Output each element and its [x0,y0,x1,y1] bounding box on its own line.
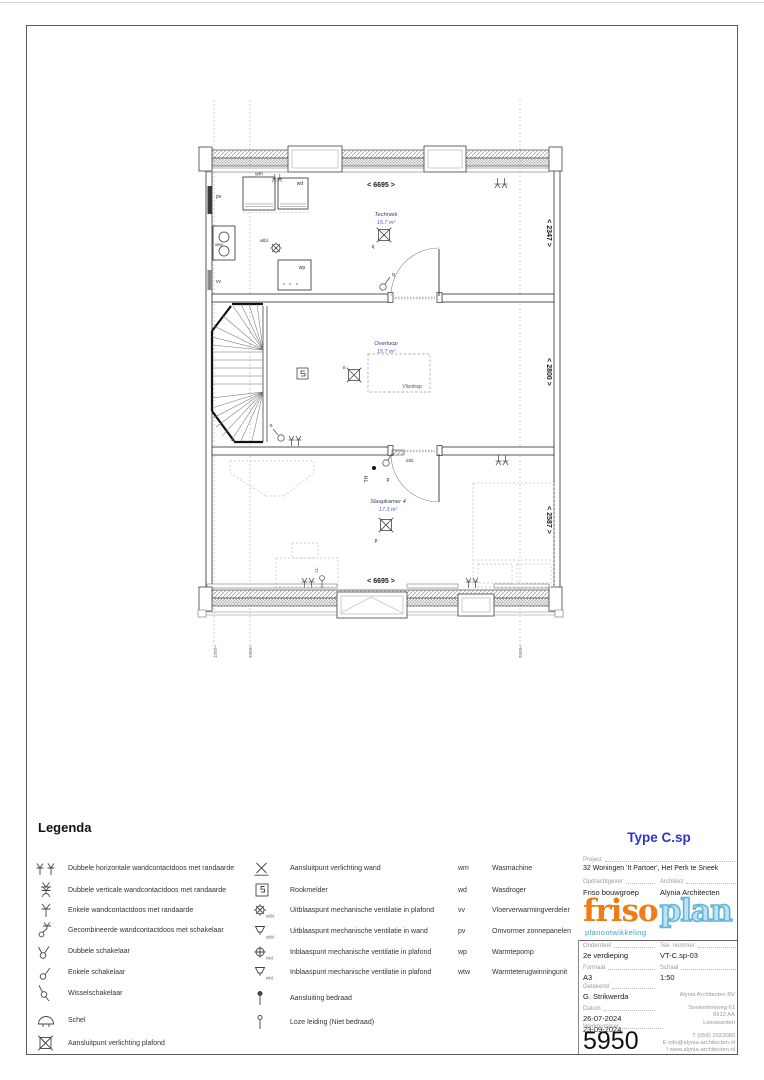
loze-leiding-label: LL [314,567,319,573]
supply-vent-ceiling-icon: inbl. [250,943,280,961]
dim-bottom: < 6695 > [367,578,395,585]
vlizotrap-label: Vlizotrap [402,384,422,390]
office-street: Snekertrekweg 61 [617,1005,735,1012]
switch-group-label-q: q [372,244,375,250]
office-zip: 8912 AA [617,1012,735,1019]
doorbell-icon [34,1011,58,1029]
room-area-techniek: 15.7 m² [377,220,395,226]
drawing-type-title: Type C.sp [583,830,735,845]
part-label: Onderdeel [583,943,611,949]
switch-label-q2: q [392,272,395,278]
dim-top: < 6695 > [367,182,395,189]
svg-text:inbl.: inbl. [266,976,274,981]
room-area-slaapkamer: 17.3 m² [379,507,397,513]
logo-plan-text: plan [660,896,732,927]
thermostat-label: TH [364,475,370,482]
architect-office-block: Alynia Architecten BV Snekertrekweg 61 8… [617,992,735,1055]
supply-vent-wall-icon: inbl. [250,963,280,981]
legend-label: Inblaaspunt mechanische ventilatie in pl… [290,969,431,976]
socket-switch-combo-icon [34,921,58,939]
legend-abbr: wp [458,949,482,956]
wp-label: wp [299,265,306,271]
legend-row: Aansluitpunt verlichting wand [250,859,381,877]
dim-right-mid: < 2800 > [545,358,552,386]
legend-title: Legenda [38,820,91,835]
dwgno-value: VT-C.sp-03 [660,951,698,960]
part-field: Onderdeel [583,943,655,949]
empty-conduit-icon [250,1013,280,1031]
office-email: E info@alynia-architecten.nl [617,1040,735,1047]
logo-friso-text: friso [583,896,658,927]
page-top-edge [0,2,764,3]
electrical-symbols: q o p q o p TH uitbl. inbl. LL [259,174,508,588]
project-value: 32 Woningen 'It Partoer', Het Perk te Sn… [583,865,718,872]
legend-abbr: wtw [458,969,482,976]
project-label: Project [583,857,602,863]
double-horizontal-socket-icon [34,859,58,877]
legend-row: Enkele wandcontactdoos met randaarde [34,901,193,919]
architect-label: Architect [660,879,683,885]
legend-row: wm Wasmachine [458,859,532,877]
scale-value: 1:50 [660,973,675,982]
legend-label: Warmtepomp [492,949,534,956]
extract-vent-ceiling-icon: uitbl. [250,901,280,919]
legend-label: Dubbele verticale wandcontactdoos met ra… [68,887,226,894]
legend-label: Uitblaaspunt mechanische ventilatie in w… [290,928,428,935]
legend-label: Dubbele schakelaar [68,948,130,955]
drawn-label: Getekend [583,984,609,990]
uitbl-label: uitbl. [259,238,269,243]
switch-label-p2: p [387,477,390,483]
legend-label: Dubbele horizontale wandcontactdoos met … [68,865,234,872]
legend-abbr: pv [458,928,482,935]
equipment: wm wd wtw wp pv vv [208,172,312,291]
format-value: A3 [583,973,592,982]
legend-label: Aansluitpunt verlichting plafond [68,1040,165,1047]
legend-label: Omvormer zonnepanelen [492,928,571,935]
legend-label: Vloerverwarmingverdeler [492,907,570,914]
office-name: Alynia Architecten BV [617,992,735,999]
legend-label: Rookmelder [290,887,328,894]
legend-row: Dubbele schakelaar [34,942,130,960]
legend-label: Wisselschakelaar [68,990,122,997]
legend-label: Loze leiding (Niet bedraad) [290,1019,374,1026]
legend-label: Enkele schakelaar [68,969,125,976]
legend-row: Schel [34,1011,86,1029]
double-switch-icon [34,942,58,960]
grid-label-mid: 2600+ [248,645,253,658]
office-tel: T (058) 2023080 [617,1033,735,1040]
double-vertical-socket-icon [34,881,58,899]
date-value-1: 26-07-2024 [583,1014,621,1023]
legend-label: Aansluitpunt verlichting wand [290,865,381,872]
client-field: Opdrachtgever [583,879,655,885]
legend-row: inbl. Inblaaspunt mechanische ventilatie… [250,943,431,961]
legend-label: Uitblaaspunt mechanische ventilatie in p… [290,907,434,914]
legend-row: wd Wasdroger [458,881,526,899]
room-name-slaapkamer: Slaapkamer 4 [370,499,406,505]
legend-label: Aansluiting bedraad [290,995,352,1002]
wall-light-icon [250,859,280,877]
legend-row: Loze leiding (Niet bedraad) [250,1013,374,1031]
two-way-switch-icon [34,984,58,1002]
extract-vent-wall-icon: uitbl. [250,922,280,940]
scale-label: Schaal [660,965,678,971]
legend-row: Aansluitpunt verlichting plafond [34,1034,165,1052]
legend-label: Gecombineerde wandcontactdoos met schake… [68,927,224,934]
dryer-label: wd [297,181,304,187]
wtw-label: wtw [215,242,224,247]
grid-label-left: 1500+ [213,645,218,658]
svg-text:uitbl.: uitbl. [266,914,275,919]
dim-right-top: < 2347 > [545,219,552,247]
scale-field: Schaal [660,965,736,971]
single-socket-icon [34,901,58,919]
drawing-sheet: { "plan": { "rooms": [ {"name": "Technie… [0,0,764,1080]
furniture-dashed [230,461,554,587]
dwgno-label: Tek. nummer [660,943,695,949]
legend-abbr: wm [458,865,482,872]
titleblock-divider [578,940,737,941]
legend-label: Enkele wandcontactdoos met randaarde [68,907,193,914]
room-area-overloop: 15.7 m² [377,349,395,355]
legend-row: Rookmelder [250,881,328,899]
legend-row: Enkele schakelaar [34,963,125,981]
staircase [212,304,267,442]
frisoplan-logo: friso plan [583,896,732,932]
format-field: Formaat [583,965,655,971]
dim-right-bottom: < 2587 > [545,506,552,534]
legend-row: Gecombineerde wandcontactdoos met schake… [34,921,224,939]
svg-text:inbl.: inbl. [266,956,274,961]
legend-label: Schel [68,1017,86,1024]
format-label: Formaat [583,965,605,971]
legend-row: uitbl. Uitblaaspunt mechanische ventilat… [250,922,428,940]
switch-group-label-p: p [375,538,378,544]
titleblock-left-border [578,940,579,1054]
logo-subtitle: planontwikkeling [585,928,646,937]
legend-row: Wisselschakelaar [34,984,122,1002]
legend-row: pv Omvormer zonnepanelen [458,922,571,940]
legend-abbr: wd [458,887,482,894]
legend-label: Warmteterugwinningunit [492,969,567,976]
legend-row: uitbl. Uitblaaspunt mechanische ventilat… [250,901,434,919]
legend-label: Wasmachine [492,865,532,872]
ceiling-light-icon [34,1034,58,1052]
pv-label: pv [216,194,222,200]
part-value: 2e verdieping [583,951,628,960]
office-city: Leeuwarden [617,1020,735,1027]
wired-connection-icon [250,989,280,1007]
room-name-overloop: Overloop [374,341,398,347]
washer-label: wm [255,172,263,178]
architect-field: Architect [660,879,736,885]
svg-text:uitbl.: uitbl. [266,935,275,940]
legend-row: vv Vloerverwarmingverdeler [458,901,570,919]
legend-abbr: vv [458,907,482,914]
legend-row: Aansluiting bedraad [250,989,352,1007]
office-web: I www.alynia-architecten.nl [617,1047,735,1054]
legend-row: wp Warmtepomp [458,943,534,961]
room-name-techniek: Techniek [375,212,399,218]
dimensions: < 6695 > < 6695 > < 2347 > < 2800 > < 25… [367,182,552,585]
drawn-field: Getekend [583,984,655,990]
grid-label-right: 2600+ [518,645,523,658]
legend-row: inbl. Inblaaspunt mechanische ventilatie… [250,963,431,981]
client-label: Opdrachtgever [583,879,623,885]
legend-label: Wasdroger [492,887,526,894]
dwgno-field: Tek. nummer [660,943,736,949]
doors [391,248,439,502]
switch-group-label-o: o [343,365,346,371]
legend-row: Dubbele horizontale wandcontactdoos met … [34,859,234,877]
legend-row: Dubbele verticale wandcontactdoos met ra… [34,881,226,899]
inbl-label: inbl. [406,458,414,463]
legend-label: Inblaaspunt mechanische ventilatie in pl… [290,949,431,956]
project-field: Project [583,857,735,863]
smoke-detector-icon [250,881,280,899]
date-label: Datum [583,1006,601,1012]
floor-plan-drawing: 1500+ 2600+ 2600+ [190,88,580,673]
single-switch-icon [34,963,58,981]
loft-ladder: Vlizotrap [368,354,430,392]
vv-label: vv [216,279,222,285]
legend-row: wtw Warmteterugwinningunit [458,963,567,981]
switch-label-o2: o [270,423,273,429]
